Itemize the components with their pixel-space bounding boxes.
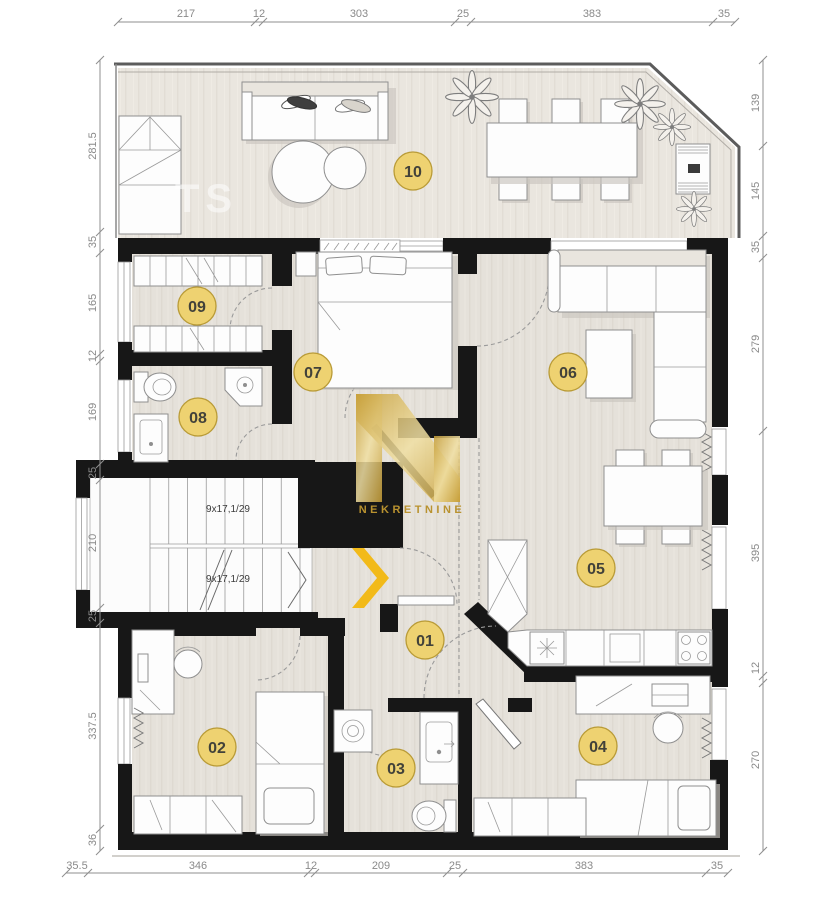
brand-name: NEKRETNINE [359, 504, 466, 516]
room-number: 05 [587, 561, 605, 578]
room-number: 09 [188, 299, 206, 316]
toilet-symbol [412, 800, 456, 832]
washing-machine-symbol [334, 710, 372, 752]
dim-label: 346 [189, 860, 207, 872]
terrace-dining-symbol [487, 99, 643, 203]
room-number: 02 [208, 740, 226, 757]
dim-label: 303 [350, 8, 368, 20]
dim-label: 12 [87, 350, 99, 362]
room-badge-04: 04 [579, 727, 617, 765]
stove-symbol [678, 632, 710, 664]
ghost-watermark-text: TS [175, 177, 238, 221]
dim-label: 383 [583, 8, 601, 20]
stair-label-upper: 9x17,1/29 [206, 504, 250, 515]
room-badge-07: 07 [294, 353, 332, 391]
dim-label: 139 [750, 94, 762, 112]
dim-label: 12 [253, 8, 265, 20]
room-badge-03: 03 [377, 749, 415, 787]
dim-label: 279 [750, 335, 762, 353]
vanity-symbol [420, 712, 458, 784]
dim-label: 12 [305, 860, 317, 872]
terrace: TS [114, 64, 739, 238]
plant-icon [615, 79, 666, 130]
wardrobe-symbol [134, 796, 242, 834]
wardrobe-symbol [474, 798, 586, 836]
sofa-symbol [242, 82, 396, 144]
stair-label-lower: 9x17,1/29 [206, 574, 250, 585]
dim-label: 12 [750, 662, 762, 674]
dim-label: 383 [575, 860, 593, 872]
dim-label: 35 [711, 860, 723, 872]
room-number: 08 [189, 410, 207, 427]
console-symbol [398, 596, 454, 605]
room-number: 04 [589, 739, 607, 756]
room-badge-10: 10 [394, 152, 432, 190]
plant-icon [653, 108, 690, 145]
dim-label: 270 [750, 751, 762, 769]
dim-label: 35 [718, 8, 730, 20]
coffee-table-symbol [586, 330, 636, 402]
dim-label: 35 [750, 241, 762, 253]
terrace-cabinet-symbol [119, 116, 181, 234]
dim-label: 36 [87, 834, 99, 846]
room-badge-08: 08 [179, 398, 217, 436]
vanity-symbol [134, 414, 168, 462]
dim-label: 25 [457, 8, 469, 20]
room-number: 10 [404, 164, 422, 181]
floorplan-canvas: TS 9x17,1/29 9x17,1/29 [0, 0, 819, 900]
dim-label: 165 [87, 294, 99, 312]
grill-symbol [676, 144, 710, 194]
plant-icon [676, 191, 711, 226]
room-number: 06 [559, 365, 577, 382]
room-badge-02: 02 [198, 728, 236, 766]
room-number: 07 [304, 365, 322, 382]
watermark-n-rightbar [434, 436, 460, 502]
dim-label: 169 [87, 403, 99, 421]
dim-label: 281.5 [87, 132, 99, 160]
staircase: 9x17,1/29 9x17,1/29 [90, 476, 312, 614]
dim-label: 35.5 [66, 860, 87, 872]
sink-symbol [530, 632, 564, 664]
room-badge-01: 01 [406, 621, 444, 659]
dim-label: 25 [87, 610, 99, 622]
dim-label: 25 [449, 860, 461, 872]
toilet-symbol [134, 372, 176, 402]
room-number: 03 [387, 761, 405, 778]
room-badge-06: 06 [549, 353, 587, 391]
room-badge-09: 09 [178, 287, 216, 325]
dim-label: 209 [372, 860, 390, 872]
room-number: 01 [416, 633, 434, 650]
dim-label: 145 [750, 182, 762, 200]
bed-symbol [256, 692, 328, 836]
dim-label: 337.5 [87, 712, 99, 740]
floorplan-drawing: TS 9x17,1/29 9x17,1/29 [0, 0, 819, 900]
dim-label: 210 [87, 534, 99, 552]
plant-icon [446, 71, 499, 124]
dim-label: 217 [177, 8, 195, 20]
bed-symbol [576, 780, 720, 838]
room-badge-05: 05 [577, 549, 615, 587]
dim-label: 25 [87, 467, 99, 479]
dim-label: 35 [87, 236, 99, 248]
dim-label: 395 [750, 544, 762, 562]
